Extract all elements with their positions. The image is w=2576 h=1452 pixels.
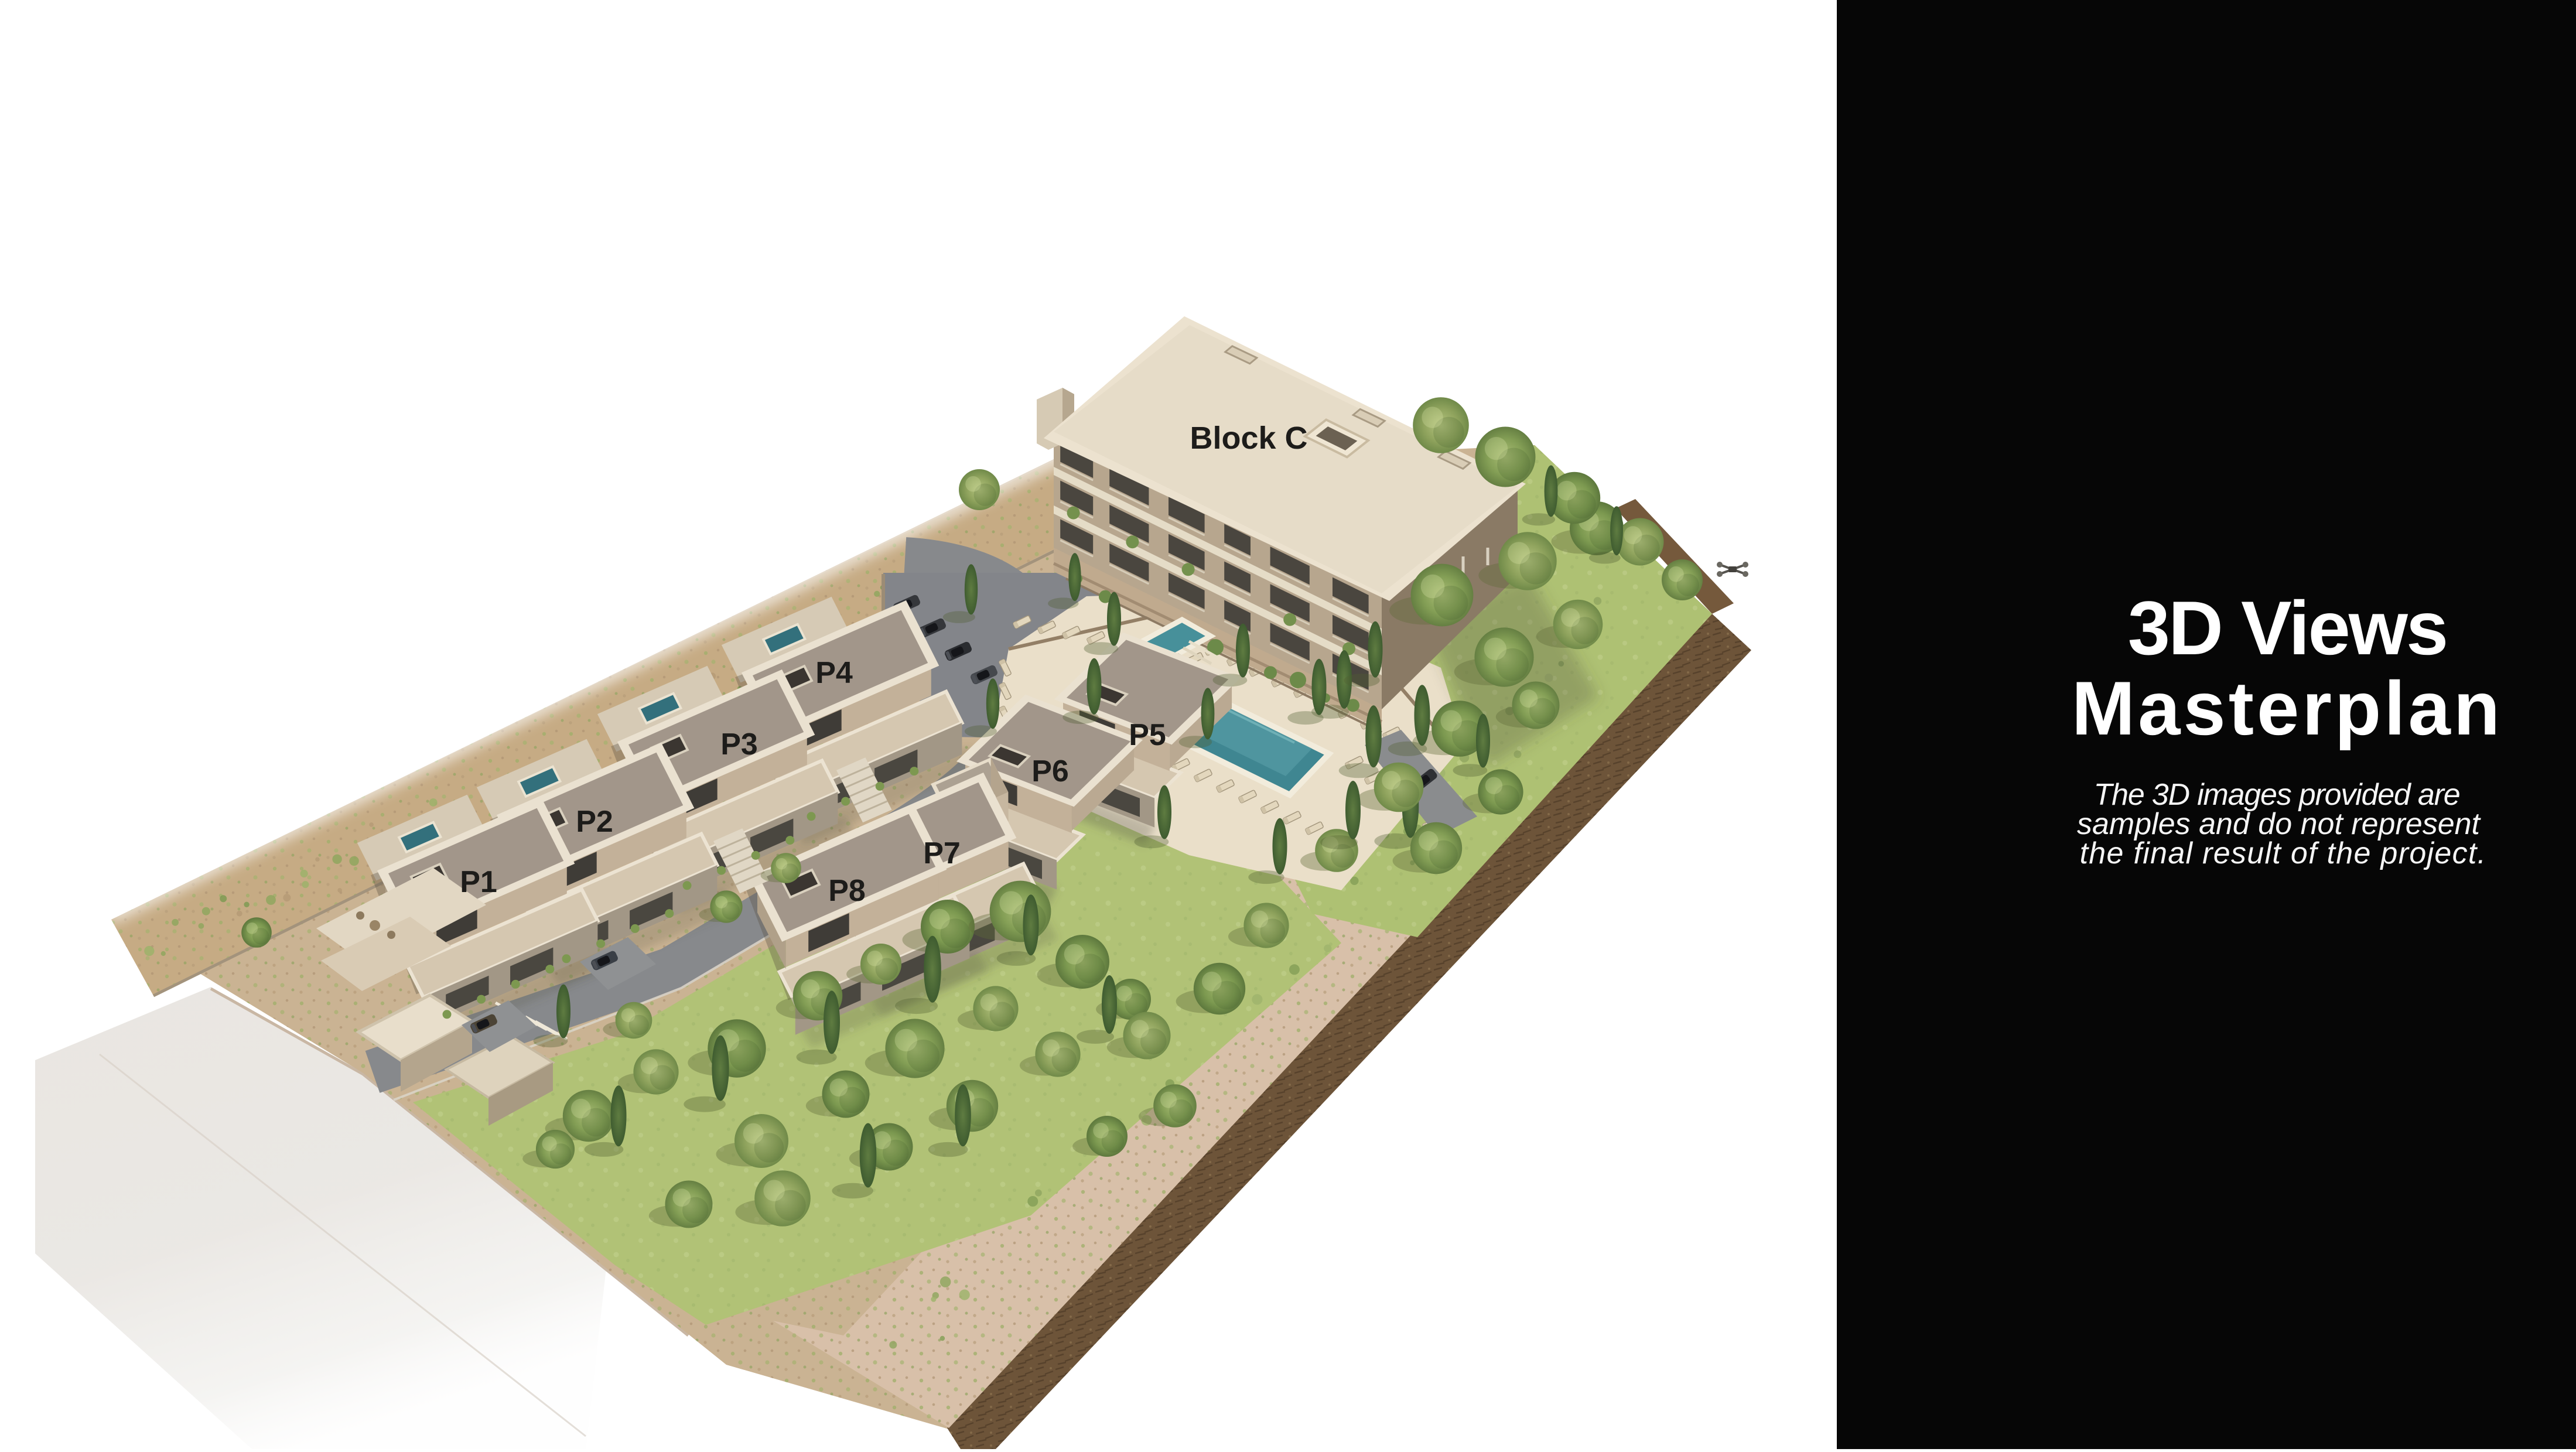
svg-text:P3: P3 xyxy=(720,727,758,761)
svg-text:Block C: Block C xyxy=(1190,421,1307,456)
svg-text:P1: P1 xyxy=(460,865,497,899)
svg-text:P4: P4 xyxy=(815,656,853,690)
svg-text:Masterplan: Masterplan xyxy=(2072,665,2503,751)
svg-text:P7: P7 xyxy=(923,836,961,870)
svg-text:P8: P8 xyxy=(828,874,866,908)
svg-text:3D Views: 3D Views xyxy=(2128,585,2447,671)
svg-text:P5: P5 xyxy=(1129,718,1166,752)
svg-text:P2: P2 xyxy=(576,805,613,839)
svg-text:P6: P6 xyxy=(1031,754,1069,788)
svg-text:the final result of the projec: the final result of the project. xyxy=(2080,836,2487,870)
